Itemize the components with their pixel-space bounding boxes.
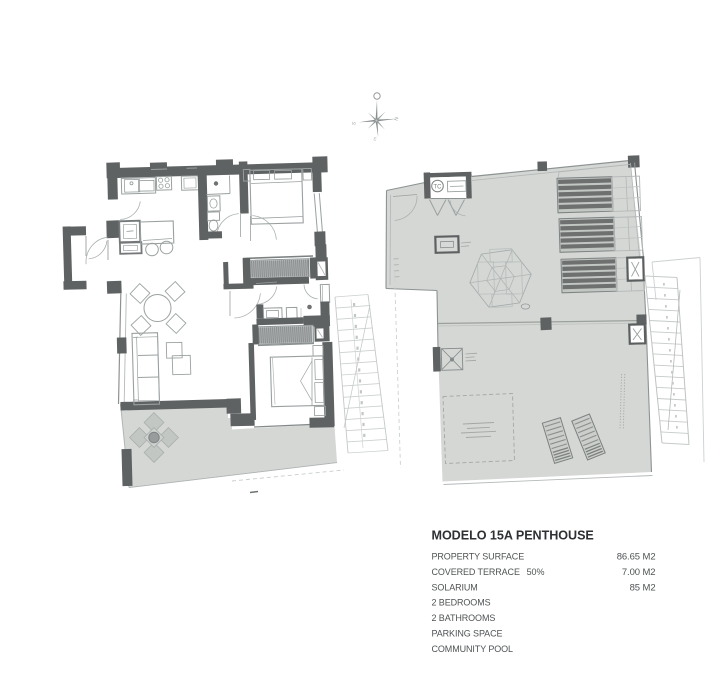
svg-text:PROPERTY SURFACE: PROPERTY SURFACE — [432, 552, 525, 562]
svg-text:MODELO 15A PENTHOUSE: MODELO 15A PENTHOUSE — [432, 529, 594, 543]
svg-text:2 BATHROOMS: 2 BATHROOMS — [432, 613, 496, 623]
svg-text:SOLARIUM: SOLARIUM — [432, 583, 478, 593]
svg-text:7.00 M2: 7.00 M2 — [622, 567, 656, 578]
svg-text:COVERED TERRACE 50%: COVERED TERRACE 50% — [432, 567, 545, 577]
svg-text:2 BEDROOMS: 2 BEDROOMS — [432, 598, 491, 608]
svg-text:TC: TC — [434, 185, 443, 191]
svg-text:COMMUNITY POOL: COMMUNITY POOL — [432, 644, 514, 654]
svg-text:86.65 M2: 86.65 M2 — [617, 552, 656, 563]
svg-text:85 M2: 85 M2 — [630, 583, 656, 594]
svg-text:PARKING SPACE: PARKING SPACE — [432, 629, 503, 639]
